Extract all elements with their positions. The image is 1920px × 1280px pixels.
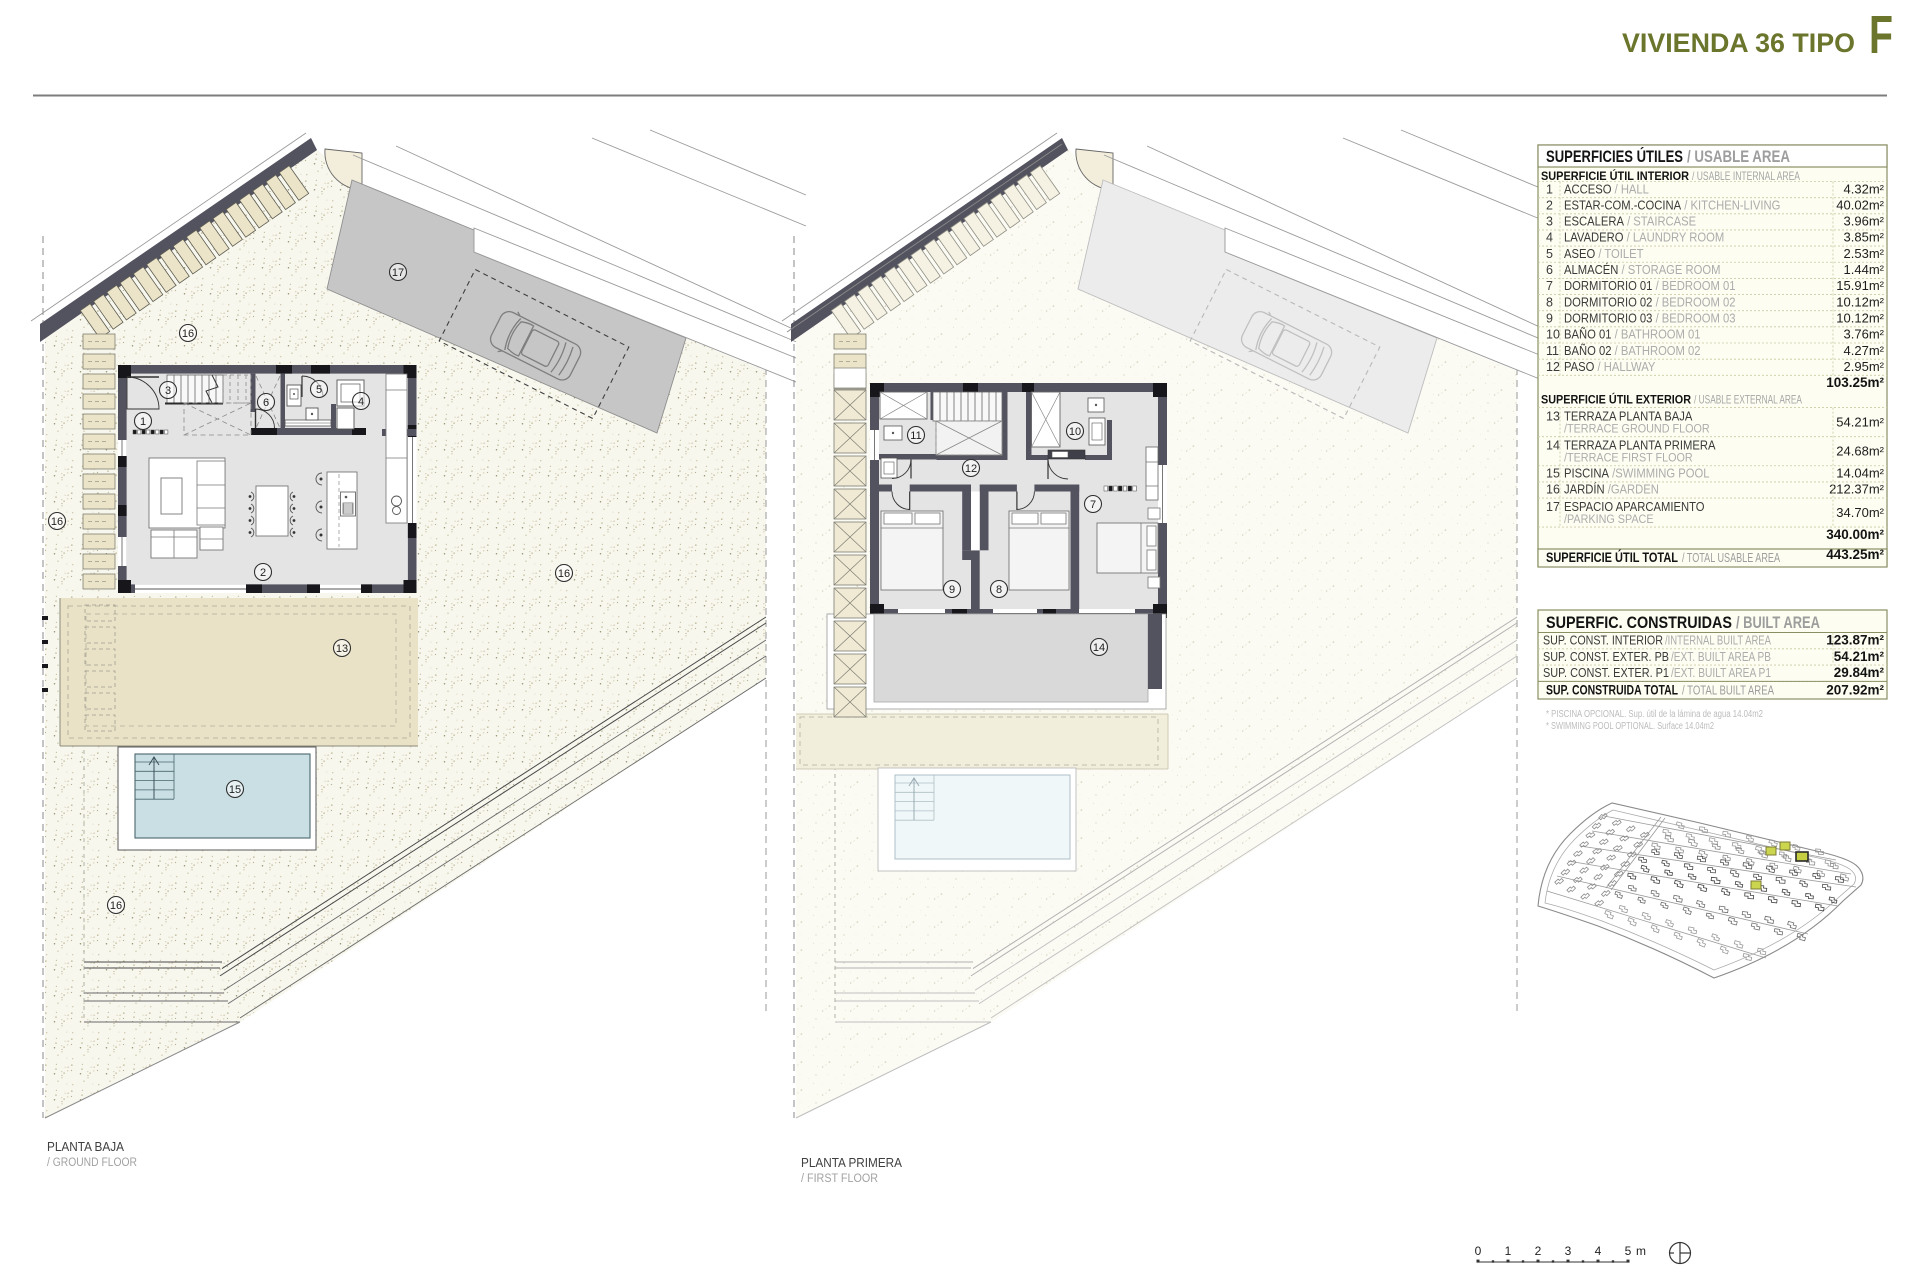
svg-text:DORMITORIO 01 / BEDROOM 01: DORMITORIO 01 / BEDROOM 01	[1564, 279, 1736, 294]
svg-text:BAÑO 01 / BATHROOM 01: BAÑO 01 / BATHROOM 01	[1564, 327, 1701, 342]
svg-text:340.00m²: 340.00m²	[1826, 527, 1884, 542]
svg-text:212.37m²: 212.37m²	[1829, 482, 1885, 497]
svg-text:10.12m²: 10.12m²	[1836, 311, 1884, 326]
svg-text:* PISCINA OPCIONAL. Sup. útil: * PISCINA OPCIONAL. Sup. útil de la lámi…	[1546, 709, 1763, 720]
svg-text:11: 11	[1546, 344, 1559, 358]
svg-text:2: 2	[260, 567, 266, 579]
svg-text:15: 15	[229, 784, 241, 796]
svg-text:10: 10	[1069, 426, 1081, 438]
svg-text:4: 4	[1595, 1244, 1602, 1258]
svg-text:40.02m²: 40.02m²	[1836, 197, 1884, 212]
svg-text:/ BUILT AREA: / BUILT AREA	[1736, 613, 1820, 632]
svg-text:/ USABLE AREA: / USABLE AREA	[1687, 147, 1790, 166]
svg-text:PLANTA BAJA: PLANTA BAJA	[47, 1140, 125, 1154]
svg-text:12: 12	[965, 463, 977, 475]
svg-text:/ FIRST FLOOR: / FIRST FLOOR	[801, 1173, 878, 1185]
svg-text:/EXT. BUILT AREA P1: /EXT. BUILT AREA P1	[1671, 666, 1771, 680]
svg-text:/ USABLE INTERNAL AREA: / USABLE INTERNAL AREA	[1692, 169, 1800, 183]
svg-text:17: 17	[1546, 500, 1560, 514]
svg-text:3.85m²: 3.85m²	[1844, 230, 1885, 245]
svg-text:10.12m²: 10.12m²	[1836, 294, 1884, 309]
svg-text:TERRAZA PLANTA PRIMERA: TERRAZA PLANTA PRIMERA	[1564, 438, 1716, 453]
svg-text:2.53m²: 2.53m²	[1844, 246, 1885, 261]
svg-text:103.25m²: 103.25m²	[1826, 375, 1884, 390]
svg-text:4.32m²: 4.32m²	[1844, 181, 1885, 196]
svg-text:LAVADERO / LAUNDRY ROOM: LAVADERO / LAUNDRY ROOM	[1564, 230, 1724, 245]
svg-text:29.84m²: 29.84m²	[1834, 665, 1885, 680]
svg-text:/ TOTAL BUILT AREA: / TOTAL BUILT AREA	[1682, 683, 1774, 698]
svg-text:123.87m²: 123.87m²	[1826, 633, 1884, 648]
svg-text:3.96m²: 3.96m²	[1844, 214, 1885, 229]
svg-text:1: 1	[140, 416, 146, 428]
svg-text:PLANTA PRIMERA: PLANTA PRIMERA	[801, 1156, 903, 1170]
svg-text:SUPERFICIE ÚTIL TOTAL: SUPERFICIE ÚTIL TOTAL	[1546, 550, 1678, 565]
svg-text:14: 14	[1093, 642, 1105, 654]
svg-text:/INTERNAL BUILT AREA: /INTERNAL BUILT AREA	[1665, 634, 1771, 648]
svg-text:4.27m²: 4.27m²	[1844, 343, 1885, 358]
svg-text:8: 8	[996, 584, 1002, 596]
svg-text:3: 3	[1546, 215, 1553, 229]
svg-text:16: 16	[110, 900, 122, 912]
svg-text:443.25m²: 443.25m²	[1826, 547, 1884, 562]
svg-text:207.92m²: 207.92m²	[1826, 683, 1884, 698]
svg-text:14: 14	[1546, 439, 1560, 453]
svg-text:/EXT. BUILT AREA PB: /EXT. BUILT AREA PB	[1671, 650, 1771, 664]
svg-text:ESPACIO APARCAMIENTO: ESPACIO APARCAMIENTO	[1564, 499, 1704, 514]
svg-text:/PARKING SPACE: /PARKING SPACE	[1564, 514, 1654, 527]
svg-text:SUPERFICIES ÚTILES: SUPERFICIES ÚTILES	[1546, 147, 1683, 166]
svg-text:16: 16	[1546, 483, 1560, 497]
svg-text:24.68m²: 24.68m²	[1836, 444, 1884, 459]
svg-text:SUP. CONST. INTERIOR: SUP. CONST. INTERIOR	[1543, 634, 1663, 648]
svg-text:17: 17	[392, 267, 404, 279]
svg-text:JARDÍN /GARDEN: JARDÍN /GARDEN	[1564, 481, 1659, 497]
svg-text:* SWIMMING POOL OPTIONAL. Surf: * SWIMMING POOL OPTIONAL. Surface 14.04m…	[1546, 721, 1714, 732]
svg-text:13: 13	[336, 643, 348, 655]
svg-text:0: 0	[1475, 1244, 1482, 1258]
svg-text:ASEO / TOILET: ASEO / TOILET	[1564, 246, 1644, 261]
svg-text:5: 5	[1625, 1244, 1632, 1258]
svg-text:SUPERFICIE ÚTIL EXTERIOR: SUPERFICIE ÚTIL EXTERIOR	[1541, 392, 1691, 407]
svg-text:5: 5	[316, 384, 322, 396]
svg-text:7: 7	[1090, 499, 1096, 511]
svg-text:9: 9	[949, 584, 955, 596]
svg-text:54.21m²: 54.21m²	[1836, 415, 1884, 430]
svg-text:F: F	[1869, 5, 1893, 65]
svg-text:3.76m²: 3.76m²	[1844, 327, 1885, 342]
svg-text:PISCINA /SWIMMING POOL: PISCINA /SWIMMING POOL	[1564, 466, 1710, 481]
svg-text:4: 4	[1546, 231, 1553, 245]
svg-text:DORMITORIO 02 / BEDROOM 02: DORMITORIO 02 / BEDROOM 02	[1564, 295, 1735, 310]
svg-text:11: 11	[910, 430, 921, 442]
svg-text:/ USABLE EXTERNAL AREA: / USABLE EXTERNAL AREA	[1694, 393, 1802, 407]
svg-text:ESTAR-COM.-COCINA / KITCHEN-LI: ESTAR-COM.-COCINA / KITCHEN-LIVING	[1564, 198, 1780, 213]
svg-text:15.91m²: 15.91m²	[1836, 278, 1884, 293]
svg-text:10: 10	[1546, 328, 1560, 342]
svg-text:6: 6	[263, 397, 269, 409]
svg-text:m: m	[1636, 1244, 1646, 1258]
svg-text:3: 3	[165, 385, 171, 397]
svg-text:16: 16	[558, 568, 570, 580]
svg-text:PASO / HALLWAY: PASO / HALLWAY	[1564, 359, 1655, 374]
svg-text:4: 4	[358, 396, 364, 408]
svg-text:13: 13	[1546, 410, 1560, 424]
svg-text:TERRAZA PLANTA BAJA: TERRAZA PLANTA BAJA	[1564, 409, 1692, 424]
svg-text:8: 8	[1546, 295, 1553, 309]
svg-text:/TERRACE FIRST FLOOR: /TERRACE FIRST FLOOR	[1564, 452, 1693, 465]
svg-text:5: 5	[1546, 247, 1553, 261]
svg-text:SUPERFIC. CONSTRUIDAS: SUPERFIC. CONSTRUIDAS	[1546, 613, 1732, 632]
svg-text:3: 3	[1565, 1244, 1572, 1258]
svg-text:6: 6	[1546, 263, 1553, 277]
svg-text:ESCALERA / STAIRCASE: ESCALERA / STAIRCASE	[1564, 214, 1696, 229]
svg-text:1: 1	[1505, 1244, 1512, 1258]
svg-text:14.04m²: 14.04m²	[1836, 466, 1884, 481]
svg-text:15: 15	[1546, 467, 1560, 481]
svg-text:DORMITORIO 03 / BEDROOM 03: DORMITORIO 03 / BEDROOM 03	[1564, 311, 1736, 326]
svg-text:9: 9	[1546, 312, 1553, 326]
svg-text:54.21m²: 54.21m²	[1834, 649, 1885, 664]
svg-text:16: 16	[182, 328, 194, 340]
svg-text:1: 1	[1546, 182, 1553, 196]
svg-text:7: 7	[1546, 279, 1553, 293]
svg-text:12: 12	[1546, 360, 1560, 374]
svg-text:SUP. CONST. EXTER. PB: SUP. CONST. EXTER. PB	[1543, 650, 1669, 664]
svg-text:BAÑO 02 / BATHROOM 02: BAÑO 02 / BATHROOM 02	[1564, 343, 1701, 358]
svg-text:/TERRACE GROUND FLOOR: /TERRACE GROUND FLOOR	[1564, 423, 1710, 436]
svg-text:ALMACÉN / STORAGE ROOM: ALMACÉN / STORAGE ROOM	[1564, 261, 1720, 277]
svg-text:SUP. CONST. EXTER. P1: SUP. CONST. EXTER. P1	[1543, 666, 1669, 680]
svg-text:2: 2	[1546, 198, 1553, 212]
svg-text:2.95m²: 2.95m²	[1844, 359, 1885, 374]
svg-text:/ TOTAL USABLE AREA: / TOTAL USABLE AREA	[1682, 550, 1780, 565]
svg-text:ACCESO / HALL: ACCESO / HALL	[1564, 182, 1649, 197]
svg-text:34.70m²: 34.70m²	[1836, 505, 1884, 520]
svg-text:SUP. CONSTRUIDA TOTAL: SUP. CONSTRUIDA TOTAL	[1546, 683, 1678, 698]
svg-text:16: 16	[51, 516, 63, 528]
svg-text:VIVIENDA 36 TIPO: VIVIENDA 36 TIPO	[1622, 28, 1855, 58]
svg-text:2: 2	[1535, 1244, 1542, 1258]
svg-text:/ GROUND FLOOR: / GROUND FLOOR	[47, 1157, 137, 1169]
svg-text:1.44m²: 1.44m²	[1844, 262, 1885, 277]
